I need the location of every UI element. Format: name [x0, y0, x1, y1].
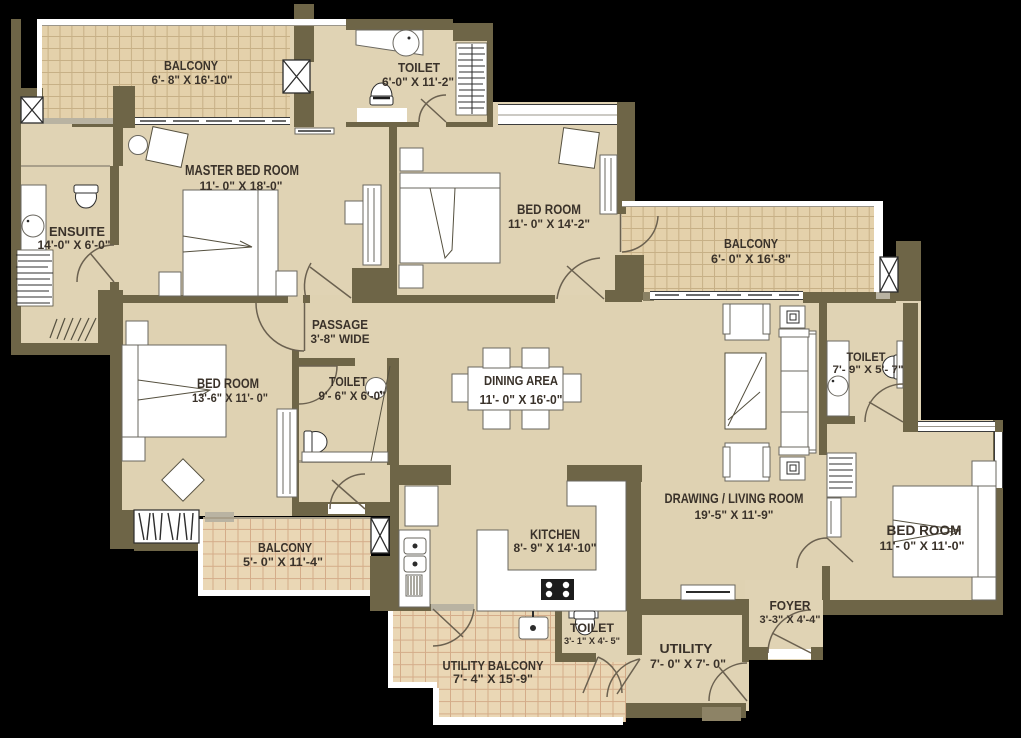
svg-text:PASSAGE: PASSAGE	[312, 317, 368, 332]
svg-text:11'- 0" X 14'-2": 11'- 0" X 14'-2"	[508, 217, 590, 231]
svg-text:BALCONY: BALCONY	[258, 540, 312, 555]
svg-text:7'- 4" X 15'-9": 7'- 4" X 15'-9"	[453, 672, 533, 686]
svg-text:MASTER BED ROOM: MASTER BED ROOM	[185, 163, 299, 179]
svg-text:DRAWING / LIVING ROOM: DRAWING / LIVING ROOM	[665, 490, 804, 506]
svg-text:UTILITY BALCONY: UTILITY BALCONY	[443, 659, 545, 673]
svg-text:11'- 0" X 11'-0": 11'- 0" X 11'-0"	[880, 539, 965, 553]
svg-text:6'-0" X 11'-2": 6'-0" X 11'-2"	[382, 77, 454, 89]
svg-text:BED ROOM: BED ROOM	[197, 375, 259, 391]
svg-text:3'- 1" X 4'- 5": 3'- 1" X 4'- 5"	[564, 636, 620, 646]
svg-text:BED ROOM: BED ROOM	[887, 523, 962, 538]
svg-text:13'-6" X 11'- 0": 13'-6" X 11'- 0"	[192, 391, 268, 405]
svg-text:11'- 0" X 18'-0": 11'- 0" X 18'-0"	[200, 179, 283, 193]
svg-text:8'- 9" X 14'-10": 8'- 9" X 14'-10"	[514, 541, 597, 555]
svg-text:BALCONY: BALCONY	[724, 236, 778, 251]
svg-text:TOILET: TOILET	[329, 375, 367, 389]
svg-text:5'- 0" X 11'-4": 5'- 0" X 11'-4"	[243, 555, 323, 569]
svg-text:KITCHEN: KITCHEN	[530, 527, 580, 542]
svg-text:7'- 0" X 7'- 0": 7'- 0" X 7'- 0"	[650, 657, 726, 671]
svg-text:DINING AREA: DINING AREA	[484, 373, 559, 388]
svg-text:6'- 8" X 16'-10": 6'- 8" X 16'-10"	[152, 73, 233, 87]
svg-text:TOILET: TOILET	[398, 60, 440, 75]
svg-text:7'- 9" X 5'- 7": 7'- 9" X 5'- 7"	[833, 364, 904, 376]
svg-text:ENSUITE: ENSUITE	[49, 224, 105, 239]
svg-text:FOYER: FOYER	[770, 599, 811, 613]
svg-text:UTILITY: UTILITY	[660, 641, 713, 656]
svg-text:TOILET: TOILET	[570, 621, 615, 635]
svg-text:11'- 0" X 16'-0": 11'- 0" X 16'-0"	[480, 393, 563, 407]
svg-text:3'-8" WIDE: 3'-8" WIDE	[311, 332, 370, 346]
svg-text:6'- 0" X 16'-8": 6'- 0" X 16'-8"	[711, 252, 791, 266]
svg-text:9'- 6" X 6'-0": 9'- 6" X 6'-0"	[319, 391, 386, 403]
svg-text:14'-0" X 6'-0": 14'-0" X 6'-0"	[38, 240, 111, 252]
svg-text:BALCONY: BALCONY	[164, 58, 218, 73]
svg-text:TOILET: TOILET	[847, 352, 886, 364]
svg-text:3'-3" X 4'-4": 3'-3" X 4'-4"	[760, 614, 821, 626]
svg-text:BED ROOM: BED ROOM	[517, 202, 581, 217]
svg-text:19'-5" X 11'-9": 19'-5" X 11'-9"	[695, 508, 774, 522]
